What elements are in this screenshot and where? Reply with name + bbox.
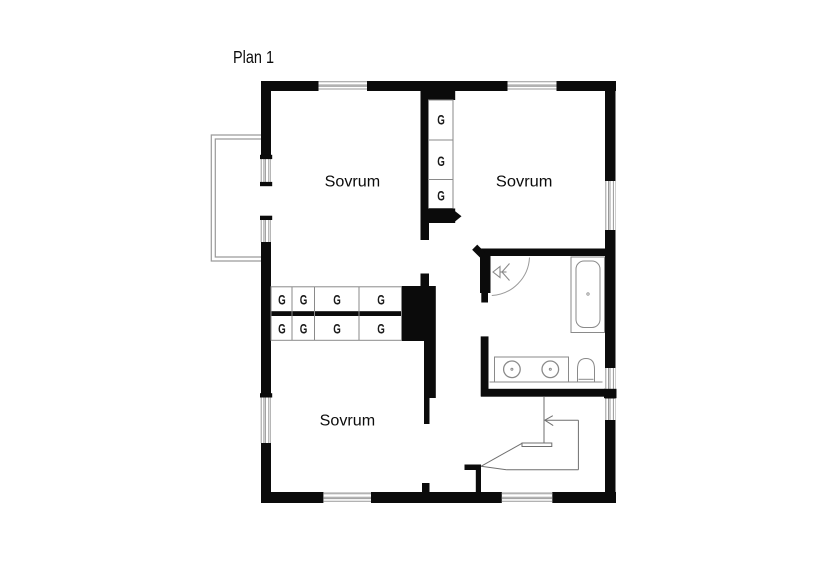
svg-text:G: G xyxy=(437,154,445,169)
svg-text:G: G xyxy=(333,321,341,336)
svg-text:G: G xyxy=(300,292,308,307)
svg-text:Sovrum: Sovrum xyxy=(325,173,381,190)
svg-text:G: G xyxy=(278,321,286,336)
svg-text:G: G xyxy=(377,292,385,307)
svg-text:G: G xyxy=(333,292,341,307)
svg-text:Sovrum: Sovrum xyxy=(496,173,553,190)
svg-text:G: G xyxy=(437,113,445,128)
svg-text:G: G xyxy=(437,189,445,204)
svg-text:G: G xyxy=(278,292,286,307)
svg-text:Sovrum: Sovrum xyxy=(320,413,376,430)
svg-text:G: G xyxy=(300,321,308,336)
svg-text:G: G xyxy=(377,321,385,336)
svg-text:Plan 1: Plan 1 xyxy=(233,47,274,67)
